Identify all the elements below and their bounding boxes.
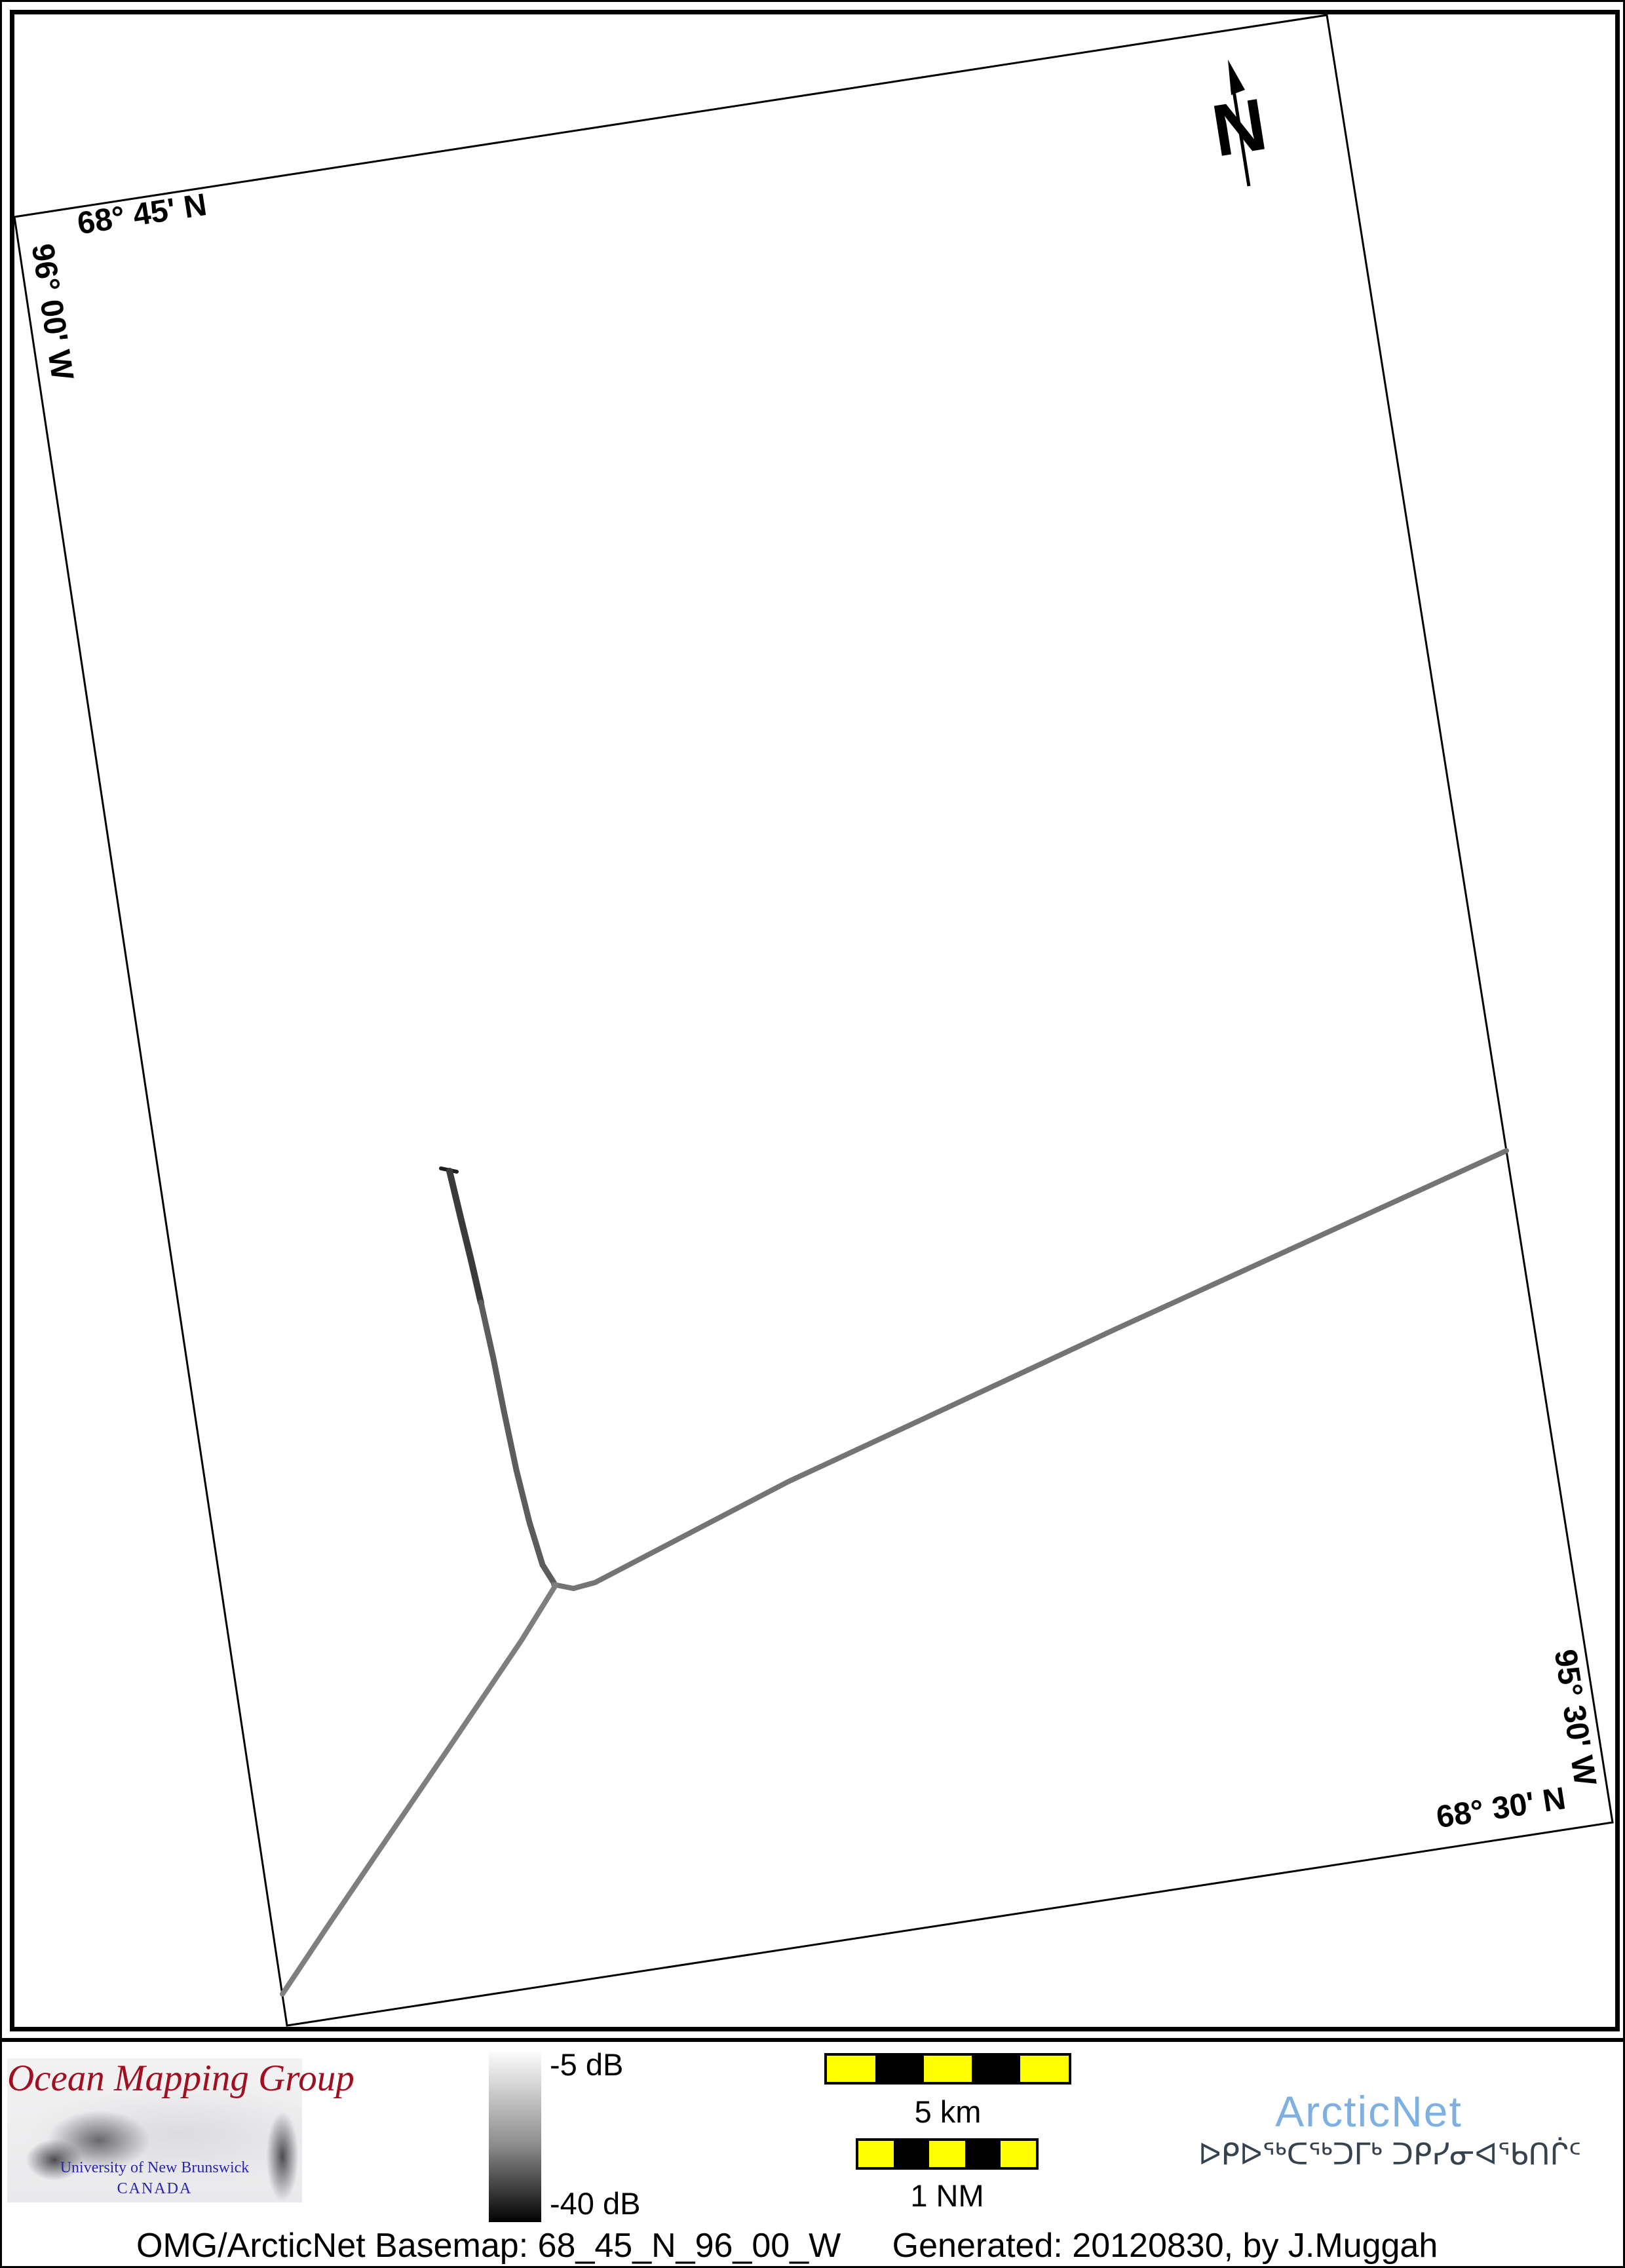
arcticnet-logo-name: ArcticNet — [1198, 2090, 1539, 2133]
scalebar-1nm — [856, 2138, 1039, 2170]
scalebar-segment — [827, 2056, 875, 2082]
map-canvas — [2, 2, 1625, 2268]
map-boundary — [14, 15, 1613, 2026]
basemap-caption-title: OMG/ArcticNet Basemap: 68_45_N_96_00_W — [136, 2227, 841, 2265]
basemap-caption: OMG/ArcticNet Basemap: 68_45_N_96_00_W G… — [136, 2227, 1438, 2265]
omg-logo-country: CANADA — [7, 2180, 302, 2198]
track-east-leg — [554, 1151, 1506, 1588]
map-footer-divider — [2, 2038, 1623, 2042]
arcticnet-logo-inuktitut: ᐅᑭᐅᖅᑕᖅᑐᒥᒃ ᑐᑭᓯᓂᐊᖃᑎᒌᑦ — [1198, 2140, 1539, 2169]
scalebar-5km — [824, 2053, 1071, 2085]
scalebar-5km-label: 5 km — [824, 2094, 1071, 2130]
track-southwest-leg — [282, 1585, 556, 1994]
arcticnet-logo: ArcticNet ᐅᑭᐅᖅᑕᖅᑐᒥᒃ ᑐᑭᓯᓂᐊᖃᑎᒌᑦ — [1198, 2090, 1539, 2169]
scalebar-segment — [929, 2141, 965, 2167]
basemap-caption-generated: Generated: 20120830, by J.Muggah — [892, 2227, 1438, 2265]
omg-logo-title: Ocean Mapping Group — [7, 2060, 302, 2097]
backscatter-colorbar — [489, 2052, 541, 2222]
track-north-leg — [481, 1303, 554, 1583]
page: 68° 45' N 96° 00' W 95° 30' W 68° 30' N … — [0, 0, 1625, 2268]
scalebar-segment — [875, 2056, 924, 2082]
north-arrow-letter: N — [1208, 94, 1270, 161]
scalebar-1nm-label: 1 NM — [856, 2178, 1039, 2214]
omg-logo-university: University of New Brunswick — [7, 2159, 302, 2177]
colorbar-min-label: -40 dB — [550, 2187, 640, 2221]
omg-logo: Ocean Mapping Group University of New Br… — [7, 2058, 302, 2202]
scalebar-segment — [924, 2056, 972, 2082]
scalebar-segment — [1001, 2141, 1036, 2167]
scalebar-segment — [894, 2141, 929, 2167]
scalebar-segment — [965, 2141, 1001, 2167]
scalebar-segment — [972, 2056, 1020, 2082]
track-north-leg-dark — [449, 1171, 481, 1303]
colorbar-max-label: -5 dB — [550, 2048, 623, 2082]
scalebar-segment — [1020, 2056, 1069, 2082]
scalebar-segment — [858, 2141, 894, 2167]
